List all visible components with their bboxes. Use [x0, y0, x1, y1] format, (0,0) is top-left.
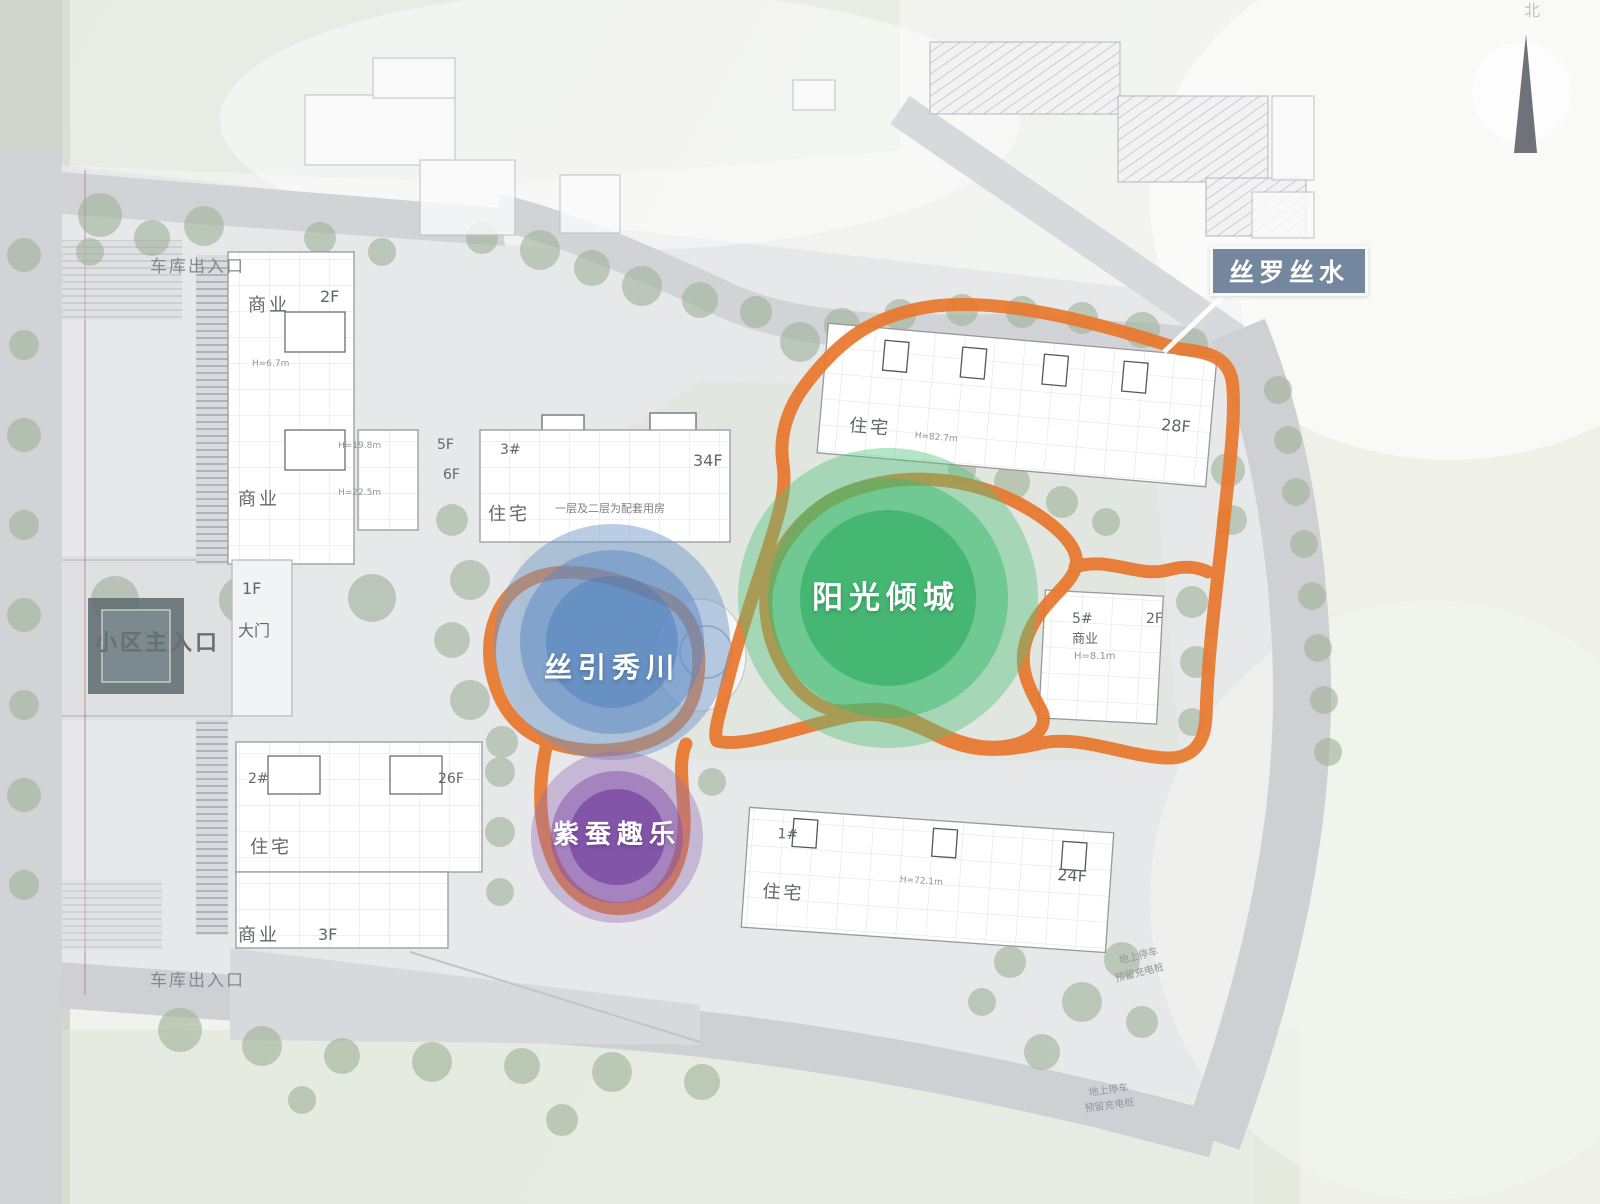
east-retail-use-label: 商业: [1072, 633, 1098, 647]
northeast-use-label: 住宅: [848, 416, 892, 439]
garage-entrance-top-label: 车库出入口: [150, 258, 245, 277]
mid-block-number-label: 3#: [500, 443, 521, 458]
site-plan: 阳光倾城 丝引秀川 紫蚕趣乐 丝罗丝水 车库出入口 车库出入口 小区主入口 1F…: [0, 0, 1600, 1204]
mid-block-use-label: 住宅: [488, 505, 530, 525]
southwest-use-label: 住宅: [250, 838, 292, 858]
mid-block-tower-floors-label: 34F: [693, 452, 723, 470]
east-retail-floors-label: 2F: [1146, 612, 1163, 627]
mid-block-h2-label: H=22.5m: [338, 489, 381, 499]
mid-block-building: [358, 413, 730, 542]
mid-block-note-label: 一层及二层为配套用房: [555, 503, 665, 515]
zone-label-silkwater-box: 丝罗丝水: [1210, 246, 1368, 296]
south-floors-label: 24F: [1057, 866, 1088, 886]
east-retail-number-label: 5#: [1072, 612, 1093, 627]
zone-label-silkworm: 紫蚕趣乐: [527, 814, 707, 851]
west-retail-floors-label: 2F: [320, 288, 339, 306]
south-use-label: 住宅: [762, 882, 805, 905]
zone-label-sunshine: 阳光倾城: [786, 572, 986, 617]
west-retail-lower-label: 商业: [238, 490, 280, 510]
gate-floor-label: 1F: [242, 580, 261, 598]
south-number-label: 1#: [777, 827, 799, 844]
southwest-retail-label: 商业: [238, 926, 280, 946]
west-retail-height-label: H=6.7m: [252, 360, 289, 370]
gate-label: 大门: [238, 622, 270, 640]
main-entrance-label: 小区主入口: [95, 632, 220, 656]
zone-label-silkstream: 丝引秀川: [517, 646, 707, 686]
garage-entrance-bottom-label: 车库出入口: [150, 972, 245, 991]
mid-block-6f-label: 6F: [443, 468, 460, 483]
east-retail-height-label: H=8.1m: [1074, 651, 1116, 662]
north-label: 北: [1524, 2, 1540, 20]
southwest-retail-floors-label: 3F: [318, 926, 337, 944]
west-retail-upper-label: 商业: [248, 296, 290, 316]
mid-block-h1-label: H=19.8m: [338, 442, 381, 452]
northeast-floors-label: 28F: [1160, 416, 1191, 436]
southwest-floors-label: 26F: [438, 772, 464, 787]
mid-block-5f-label: 5F: [437, 438, 454, 453]
southwest-number-label: 2#: [248, 772, 269, 787]
